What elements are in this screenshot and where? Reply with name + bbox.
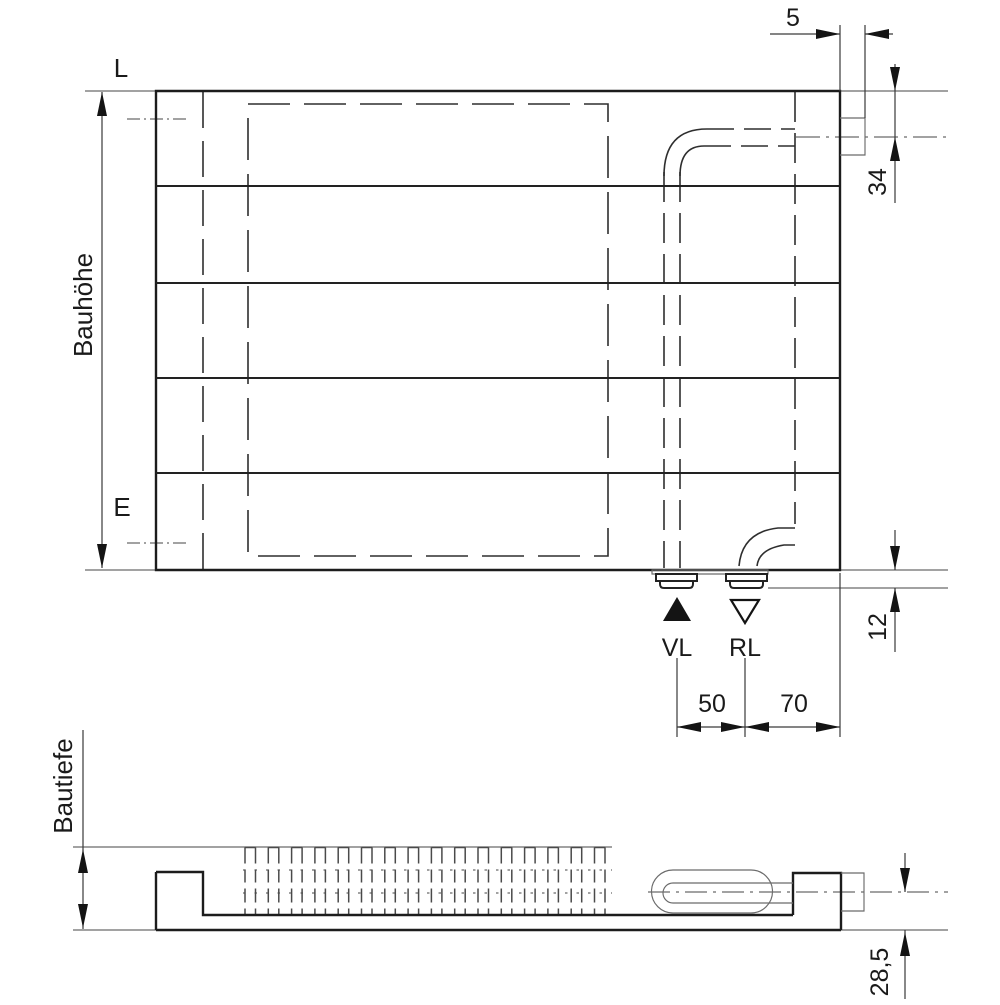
convector-dashed-outline: [248, 104, 608, 556]
rl-edge-dimension-value: 70: [780, 690, 808, 718]
tab-arrow-left: [865, 29, 889, 39]
axis-arrow-down: [890, 67, 900, 91]
front-view-dimensions: Bauhöhe 5 34 12 50 70: [68, 4, 900, 737]
axis-dimension-value: 34: [864, 168, 892, 196]
spacing-arrow-right-edge: [816, 722, 840, 732]
depth-view: [73, 847, 948, 930]
nipple-arrow-down: [890, 546, 900, 570]
axis-height-arrow-up: [900, 932, 910, 956]
return-direction-icon: [731, 600, 759, 623]
hook-distance-label: E: [113, 492, 130, 522]
supply-pipe-elbow: [664, 129, 707, 176]
nipple-dimension-value: 12: [864, 613, 892, 641]
nipple-arrow-up: [890, 588, 900, 612]
pipe-loop-inner: [663, 883, 793, 903]
panel-plate-outline: [156, 872, 841, 930]
depth-label: Bautiefe: [48, 738, 78, 833]
depth-arrow-down: [78, 904, 88, 928]
spacing-arrow-right-rl: [721, 722, 745, 732]
radiator-outline: [156, 91, 840, 570]
length-label: L: [114, 53, 128, 83]
radiator-technical-drawing: L E VL RL Bauhöhe 5 34 12 50: [0, 0, 1000, 1000]
supply-direction-icon: [663, 597, 691, 621]
spacing-arrow-left-vl: [677, 722, 701, 732]
axis-height-arrow-down: [900, 868, 910, 892]
depth-arrow-up: [78, 849, 88, 873]
axis-height-dimension-value: 28,5: [866, 948, 894, 997]
height-arrow-up: [97, 92, 107, 116]
panel-joint-lines: [156, 186, 840, 473]
depth-view-dimensions: Bautiefe 28,5: [48, 730, 910, 999]
vl-nipple: [656, 574, 697, 588]
tab-extension-lines: [840, 25, 865, 118]
spacing-arrow-left-rl: [745, 722, 769, 732]
rl-nipple: [726, 574, 767, 588]
vl-rl-dimension-value: 50: [698, 690, 726, 718]
height-label: Bauhöhe: [68, 253, 98, 357]
return-label: RL: [729, 634, 761, 662]
valve-block-outline: [793, 873, 841, 930]
front-view: L E VL RL: [85, 53, 948, 662]
supply-riser-pipe: [664, 172, 680, 568]
drawing-canvas: L E VL RL Bauhöhe 5 34 12 50: [0, 0, 1000, 1000]
supply-pipe-horizontal: [704, 129, 795, 146]
return-pipe-elbow: [739, 528, 795, 566]
tab-dimension-value: 5: [786, 4, 800, 32]
axis-arrow-up: [890, 137, 900, 161]
convector-fins: [245, 848, 605, 916]
height-arrow-down: [97, 544, 107, 568]
tab-arrow-right: [816, 29, 840, 39]
supply-label: VL: [662, 634, 693, 662]
